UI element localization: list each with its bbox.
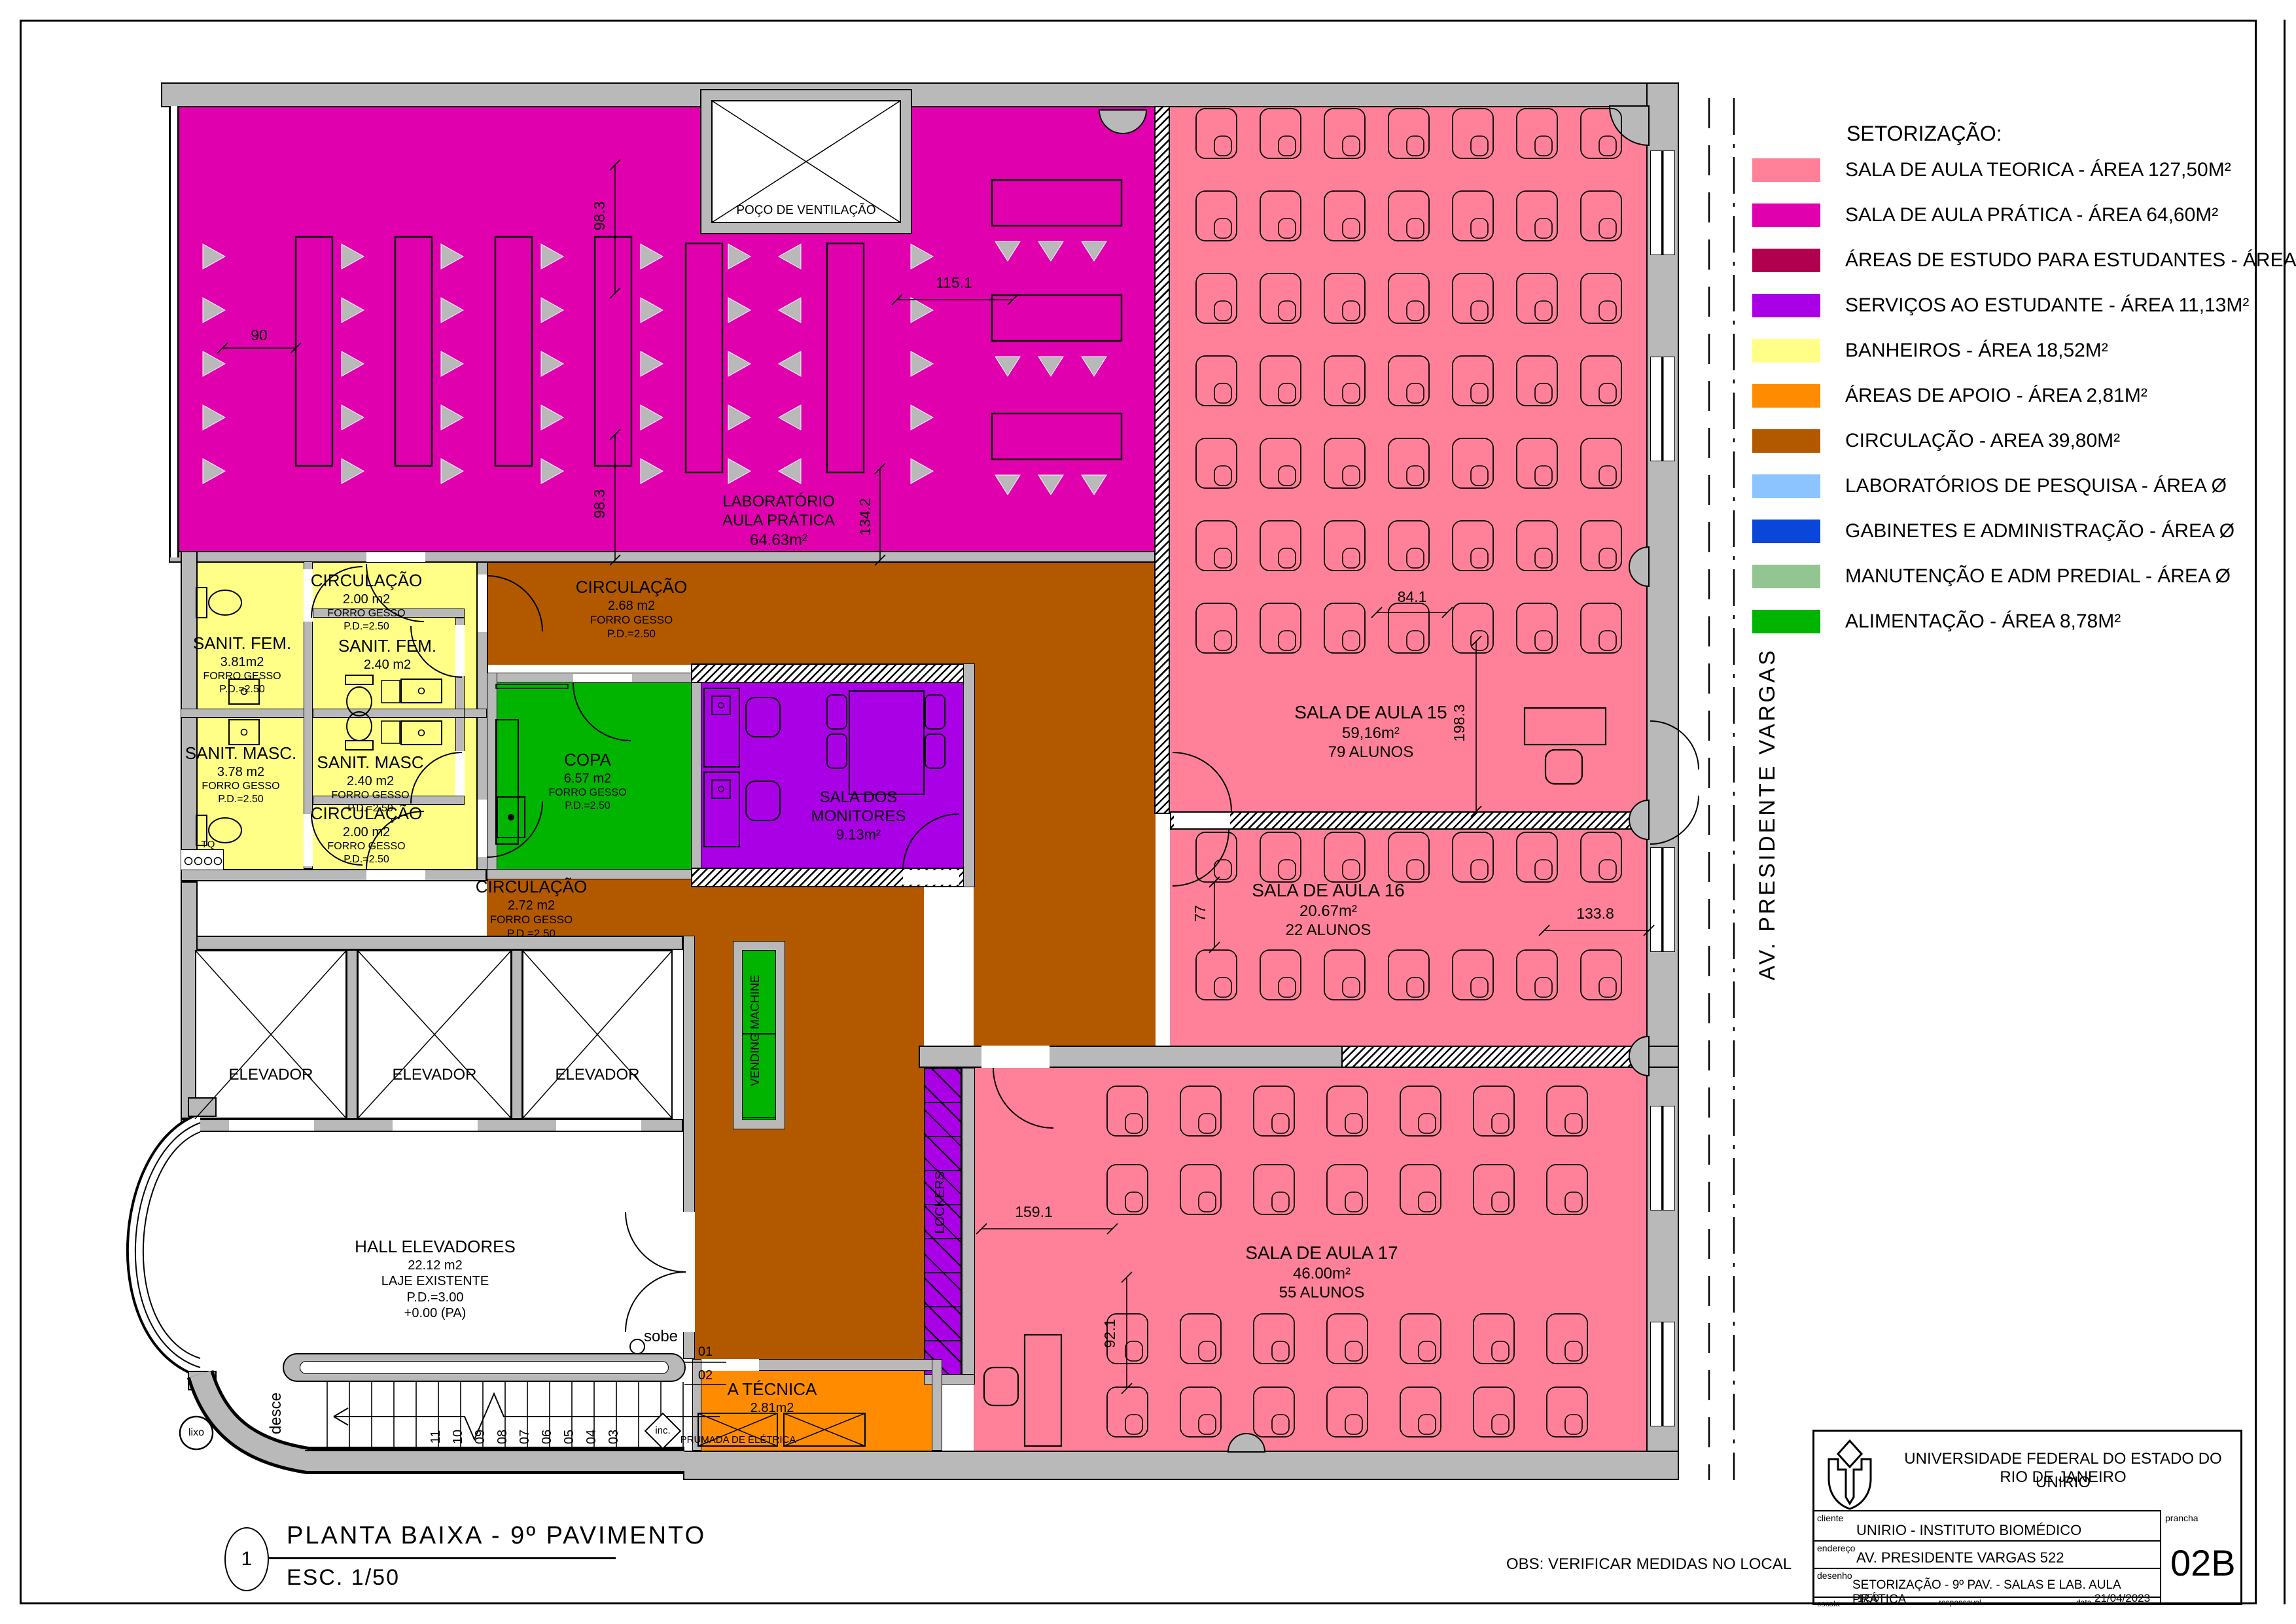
zone-circulacao-main [692, 869, 924, 1359]
lab-label: LABORATÓRIOAULA PRÁTICA64.63m² [722, 492, 835, 550]
legend-swatch [1752, 294, 1820, 317]
stair-sobe-label: sobe [644, 1327, 678, 1346]
elevator-shaft-3 [522, 950, 673, 1119]
lixo-label: lixo [188, 1426, 204, 1439]
legend-item: SALA DE AULA PRÁTICA - ÁREA 64,60M² [1752, 203, 2296, 227]
sanit-fem1-label: SANIT. FEM.3.81m2FORRO GESSOP.D.=2.50 [193, 633, 291, 696]
legend-swatch [1752, 520, 1820, 543]
tecnica-label: A TÉCNICA2.81m2 [728, 1379, 817, 1416]
legend-item: SERVIÇOS AO ESTUDANTE - ÁREA 11,13M² [1752, 294, 2296, 317]
elevator-label-1: ELEVADOR [229, 1065, 313, 1084]
legend-item: GABINETES E ADMINISTRAÇÃO - ÁREA Ø [1752, 520, 2296, 543]
legend-item: ÁREAS DE APOIO - ÁREA 2,81M² [1752, 384, 2296, 408]
tb-responsavel-label: responsavel [1939, 1598, 1981, 1607]
drawing-title-underline [269, 1557, 616, 1559]
legend-swatch [1752, 429, 1820, 453]
tb-prancha-value: 02B [2170, 1542, 2236, 1584]
sala15-label: SALA DE AULA 1559,16m²79 ALUNOS [1294, 701, 1447, 762]
legend-swatch [1752, 339, 1820, 362]
sanit-masc1-label: SANIT. MASC.3.78 m2FORRO GESSOP.D.=2.50 [185, 743, 296, 805]
sala16-label: SALA DE AULA 1620.67m²22 ALUNOS [1252, 879, 1405, 940]
legend-item: MANUTENÇÃO E ADM PREDIAL - ÁREA Ø [1752, 565, 2296, 588]
legend-swatch [1752, 158, 1820, 182]
tb-endereco-value: AV. PRESIDENTE VARGAS 522 [1856, 1549, 2064, 1566]
legend-swatch [1752, 384, 1820, 408]
wall-tecnica-right [932, 1359, 942, 1451]
legend-label: SERVIÇOS AO ESTUDANTE - ÁREA 11,13M² [1845, 294, 2249, 317]
wall-lockers-right [962, 1068, 975, 1375]
legend-swatch [1752, 565, 1820, 588]
drawing-title-marker: 1 [224, 1527, 269, 1591]
vending-label: VENDING MACHINE [749, 975, 762, 1086]
circ-top-label: CIRCULAÇÃO2.68 m2FORRO GESSOP.D.=2.50 [576, 577, 687, 641]
legend-swatch [1752, 610, 1820, 633]
sanit-fem2-label: SANIT. FEM.2.40 m2 [338, 636, 436, 673]
street-label: AV. PRESIDENTE VARGAS [1755, 648, 1780, 981]
wall-sala15-sala16-divider [1170, 811, 1649, 830]
circ-mid-label: CIRCULAÇÃO2.72 m2FORRO GESSOP.D.=2.50 [476, 877, 587, 941]
tb-cliente-value: UNIRIO - INSTITUTO BIOMÉDICO [1856, 1522, 2081, 1539]
legend-label: ÁREAS DE APOIO - ÁREA 2,81M² [1845, 385, 2147, 407]
facade-window [1650, 1106, 1675, 1210]
wall-copa-left [487, 673, 497, 879]
tb-data-label: data [2076, 1598, 2091, 1607]
tb-desenho-label: desenho [1817, 1570, 1852, 1581]
wall-bath-bottom [181, 869, 487, 881]
zone-lab-pratica [171, 105, 1156, 563]
tb-bottom-row: escala 1/50 responsavel data 21/04/2023 [1814, 1597, 2160, 1605]
facade-window [1650, 847, 1675, 952]
legend-item: SALA DE AULA TEORICA - ÁREA 127,50M² [1752, 158, 2296, 182]
legend-label: CIRCULAÇÃO - AREA 39,80M² [1845, 430, 2120, 452]
wall-left-curtain [169, 106, 179, 557]
tb-prancha-cell: prancha 02B [2160, 1510, 2244, 1605]
legend-swatch [1752, 203, 1820, 227]
legend: SALA DE AULA TEORICA - ÁREA 127,50M² SAL… [1752, 158, 2296, 655]
tb-cliente-label: cliente [1817, 1513, 1843, 1523]
legend-label: BANHEIROS - ÁREA 18,52M² [1845, 340, 2108, 362]
monitores-label: SALA DOSMONITORES9.13m² [811, 788, 906, 843]
zone-sala16 [1170, 828, 1649, 1046]
tb-escala-value: 1/50 [1858, 1592, 1879, 1605]
tb-escala-label: escala [1817, 1599, 1840, 1608]
legend-item: CIRCULAÇÃO - AREA 39,80M² [1752, 429, 2296, 453]
wall-top [161, 82, 1679, 107]
wall-lab-sala15-divider [1154, 106, 1170, 814]
elevator-label-3: ELEVADOR [556, 1065, 640, 1084]
tb-endereco-row: endereço AV. PRESIDENTE VARGAS 522 [1814, 1540, 2160, 1568]
elevator-shaft-1 [195, 950, 347, 1119]
tb-cliente-row: cliente UNIRIO - INSTITUTO BIOMÉDICO [1814, 1510, 2160, 1540]
legend-label: SALA DE AULA PRÁTICA - ÁREA 64,60M² [1845, 204, 2218, 226]
legend-label: ÁREAS DE ESTUDO PARA ESTUDANTES - ÁREA Ø [1845, 249, 2296, 272]
stair-desce-label: desce [267, 1392, 285, 1434]
wall-elev-mid2 [512, 950, 522, 1119]
elevator-shaft-2 [357, 950, 512, 1119]
unirio-logo [1824, 1439, 1876, 1511]
zone-circulacao-right [974, 665, 1156, 1046]
legend-label: ALIMENTAÇÃO - ÁREA 8,78M² [1845, 610, 2121, 633]
drawing-title: PLANTA BAIXA - 9º PAVIMENTO [287, 1522, 706, 1550]
legend-label: SALA DE AULA TEORICA - ÁREA 127,50M² [1845, 159, 2231, 181]
legend-item: BANHEIROS - ÁREA 18,52M² [1752, 339, 2296, 362]
tb-prancha-label: prancha [2165, 1513, 2199, 1523]
circ-wc-top-label: CIRCULAÇÃO2.00 m2FORRO GESSOP.D.=2.50 [311, 571, 422, 633]
tq-niche [181, 849, 224, 870]
drawing-scale: ESC. 1/50 [287, 1565, 400, 1591]
facade-window [1650, 150, 1675, 255]
drawing-sheet: 11100908070605040301029098.398.3115.1134… [0, 0, 2296, 1624]
wall-elev-top [181, 936, 683, 950]
prumada-label: PRUMADA DE ELÉTRICA [680, 1434, 796, 1446]
wall-right-facade [1646, 82, 1679, 1480]
copa-label: COPA6.57 m2FORRO GESSOP.D.=2.50 [548, 750, 626, 812]
legend-item: LABORATÓRIOS DE PESQUISA - ÁREA Ø [1752, 474, 2296, 498]
legend-item: ÁREAS DE ESTUDO PARA ESTUDANTES - ÁREA Ø [1752, 249, 2296, 272]
hall-label: HALL ELEVADORES22.12 m2LAJE EXISTENTEP.D… [355, 1237, 516, 1321]
facade-window [1650, 357, 1675, 461]
legend-item: ALIMENTAÇÃO - ÁREA 8,78M² [1752, 610, 2296, 633]
legend-label: GABINETES E ADMINISTRAÇÃO - ÁREA Ø [1845, 520, 2234, 542]
legend-label: MANUTENÇÃO E ADM PREDIAL - ÁREA Ø [1845, 565, 2231, 588]
wall-sala16-sala17-hatch [1341, 1046, 1649, 1068]
wall-monitores-right [963, 663, 975, 887]
legend-swatch [1752, 474, 1820, 498]
title-block: UNIVERSIDADE FEDERAL DO ESTADO DO RIO DE… [1812, 1430, 2242, 1605]
wall-lab-bottom [169, 551, 1157, 563]
wall-bottom [683, 1451, 1679, 1480]
obs-note: OBS: VERIFICAR MEDIDAS NO LOCAL [1506, 1555, 1792, 1574]
legend-swatch [1752, 249, 1820, 272]
lockers-label: LOCKERS [933, 1171, 948, 1234]
inc-label: inc. [655, 1425, 670, 1437]
tb-data-value: 21/04/2023 [2094, 1592, 2150, 1605]
poco-label: POÇO DE VENTILAÇÃO [736, 203, 875, 218]
sanit-masc2-label: SANIT. MASC2.40 m2FORRO GESSOP.D.=2.50 [317, 752, 423, 815]
elevator-label-2: ELEVADOR [393, 1065, 477, 1084]
legend-label: LABORATÓRIOS DE PESQUISA - ÁREA Ø [1845, 475, 2227, 497]
sala17-label: SALA DE AULA 1746.00m²55 ALUNOS [1245, 1242, 1398, 1303]
tb-org-line2: UNIRIO [1893, 1474, 2233, 1492]
facade-window [1650, 1322, 1675, 1426]
tq-label: TQ [202, 839, 215, 851]
legend-title: SETORIZAÇÃO: [1846, 122, 2002, 146]
wall-monitores-top [691, 663, 975, 683]
wall-wc-small-mid [313, 709, 465, 718]
wall-elev-mid1 [347, 950, 357, 1119]
wall-copa-right [691, 673, 701, 879]
tb-endereco-label: endereço [1817, 1543, 1855, 1553]
